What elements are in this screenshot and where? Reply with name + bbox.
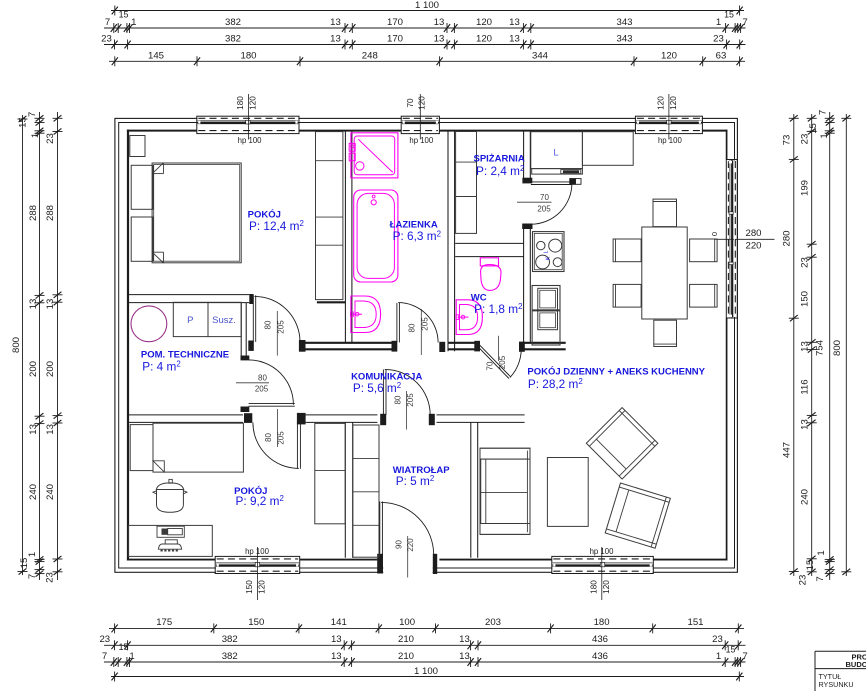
- svg-text:248: 248: [362, 50, 378, 61]
- svg-text:180: 180: [589, 580, 598, 594]
- svg-text:240: 240: [45, 484, 56, 500]
- svg-text:344: 344: [532, 50, 549, 61]
- svg-text:145: 145: [148, 50, 164, 61]
- svg-text:P: P: [187, 315, 193, 326]
- svg-text:120: 120: [249, 96, 258, 110]
- svg-text:120: 120: [476, 17, 492, 28]
- svg-text:23: 23: [800, 134, 811, 145]
- svg-text:13: 13: [331, 634, 342, 645]
- svg-text:RYSUNKU: RYSUNKU: [819, 680, 854, 689]
- svg-text:1: 1: [27, 552, 38, 557]
- svg-text:P: 12,4 m2: P: 12,4 m2: [249, 219, 304, 233]
- svg-text:382: 382: [225, 34, 241, 45]
- svg-text:15: 15: [119, 642, 129, 652]
- svg-text:205: 205: [277, 320, 286, 334]
- svg-text:L: L: [553, 148, 558, 159]
- svg-text:23: 23: [798, 575, 809, 586]
- svg-text:13: 13: [459, 651, 470, 662]
- svg-text:P: 9,2 m2: P: 9,2 m2: [236, 494, 284, 508]
- svg-text:7: 7: [815, 576, 826, 581]
- svg-text:1: 1: [716, 17, 721, 28]
- svg-text:175: 175: [156, 617, 172, 628]
- svg-text:hp 100: hp 100: [238, 136, 263, 145]
- svg-text:P: 5 m2: P: 5 m2: [396, 474, 434, 488]
- svg-text:7: 7: [102, 651, 107, 662]
- svg-text:1: 1: [30, 133, 41, 138]
- svg-text:210: 210: [398, 651, 414, 662]
- svg-text:1: 1: [819, 133, 830, 138]
- svg-text:13: 13: [459, 634, 470, 645]
- svg-text:200: 200: [45, 361, 56, 377]
- svg-text:hp 100: hp 100: [409, 136, 434, 145]
- svg-text:754: 754: [815, 339, 826, 356]
- svg-text:7: 7: [742, 17, 747, 28]
- svg-text:23: 23: [45, 572, 56, 583]
- svg-text:15: 15: [726, 645, 736, 655]
- svg-text:13: 13: [331, 651, 342, 662]
- svg-text:7: 7: [27, 112, 38, 117]
- svg-text:141: 141: [331, 617, 347, 628]
- svg-text:P: 6,3 m2: P: 6,3 m2: [393, 229, 441, 243]
- svg-text:220: 220: [406, 538, 415, 552]
- svg-text:7: 7: [27, 574, 38, 579]
- svg-text:23: 23: [45, 133, 56, 144]
- svg-text:P: 4 m2: P: 4 m2: [142, 360, 180, 374]
- svg-text:382: 382: [222, 634, 238, 645]
- svg-text:13: 13: [28, 424, 39, 435]
- svg-text:7: 7: [105, 17, 110, 28]
- svg-text:205: 205: [406, 393, 415, 407]
- svg-text:1 100: 1 100: [414, 666, 438, 677]
- svg-text:150: 150: [248, 617, 264, 628]
- svg-text:199: 199: [800, 180, 811, 196]
- svg-text:205: 205: [421, 317, 430, 331]
- svg-text:7: 7: [818, 110, 829, 115]
- svg-text:116: 116: [800, 379, 811, 394]
- svg-text:70: 70: [406, 98, 415, 108]
- svg-text:180: 180: [240, 50, 256, 61]
- svg-text:15: 15: [724, 10, 734, 20]
- svg-text:343: 343: [616, 34, 632, 45]
- svg-text:447: 447: [782, 442, 793, 458]
- svg-text:800: 800: [832, 340, 843, 356]
- svg-text:23: 23: [800, 257, 811, 268]
- svg-text:23: 23: [712, 634, 723, 645]
- svg-text:15: 15: [18, 117, 29, 128]
- svg-text:120: 120: [602, 580, 611, 594]
- svg-text:13: 13: [800, 419, 811, 430]
- svg-text:13: 13: [330, 34, 341, 45]
- svg-text:73: 73: [782, 135, 793, 146]
- svg-text:hp 100: hp 100: [590, 547, 615, 556]
- svg-text:23: 23: [99, 634, 110, 645]
- svg-text:1: 1: [816, 550, 827, 555]
- svg-text:13: 13: [45, 424, 56, 435]
- svg-text:170: 170: [387, 34, 403, 45]
- svg-text:80: 80: [408, 323, 417, 332]
- svg-text:120: 120: [257, 580, 266, 594]
- svg-text:280: 280: [745, 228, 761, 239]
- svg-text:150: 150: [800, 291, 811, 307]
- svg-text:hp 100: hp 100: [245, 547, 270, 556]
- svg-text:1: 1: [716, 651, 721, 662]
- svg-text:436: 436: [592, 634, 608, 645]
- svg-text:120: 120: [476, 34, 492, 45]
- svg-text:170: 170: [387, 17, 403, 28]
- svg-text:7: 7: [742, 651, 747, 662]
- svg-text:205: 205: [537, 204, 551, 213]
- svg-text:151: 151: [687, 617, 703, 628]
- svg-text:100: 100: [399, 617, 415, 628]
- svg-text:180: 180: [594, 617, 610, 628]
- svg-text:70: 70: [485, 361, 494, 370]
- svg-text:15: 15: [808, 123, 819, 134]
- svg-text:80: 80: [264, 320, 273, 329]
- svg-text:0: 0: [710, 232, 719, 236]
- svg-text:13: 13: [509, 17, 520, 28]
- svg-text:200: 200: [28, 361, 39, 377]
- svg-text:80: 80: [394, 395, 403, 404]
- svg-text:13: 13: [434, 17, 445, 28]
- svg-text:1: 1: [129, 651, 134, 662]
- svg-text:220: 220: [745, 241, 761, 252]
- svg-text:240: 240: [800, 489, 811, 505]
- svg-text:90: 90: [395, 540, 404, 549]
- svg-text:120: 120: [656, 96, 665, 110]
- svg-text:80: 80: [258, 373, 267, 382]
- svg-text:23: 23: [713, 34, 724, 45]
- svg-text:205: 205: [255, 385, 269, 394]
- svg-text:15: 15: [119, 10, 129, 20]
- svg-text:K: K: [546, 256, 552, 260]
- svg-text:13: 13: [800, 341, 811, 352]
- svg-text:288: 288: [28, 205, 39, 221]
- svg-text:1: 1: [131, 17, 136, 28]
- svg-text:13: 13: [330, 17, 341, 28]
- svg-text:BUDO: BUDO: [846, 660, 866, 669]
- svg-text:80: 80: [264, 433, 273, 442]
- svg-text:120: 120: [661, 50, 677, 61]
- svg-text:POKÓJ DZIENNY + ANEKS KUCHENNY: POKÓJ DZIENNY + ANEKS KUCHENNY: [527, 366, 705, 378]
- svg-text:120: 120: [418, 96, 427, 110]
- svg-text:203: 203: [485, 617, 501, 628]
- svg-text:P: 5,6 m2: P: 5,6 m2: [353, 381, 401, 395]
- svg-text:205: 205: [498, 355, 507, 369]
- svg-text:L: L: [544, 250, 550, 253]
- svg-text:210: 210: [398, 634, 414, 645]
- svg-text:23: 23: [101, 34, 112, 45]
- svg-text:382: 382: [225, 17, 241, 28]
- svg-text:150: 150: [245, 580, 254, 594]
- svg-text:205: 205: [277, 431, 286, 445]
- svg-text:382: 382: [222, 651, 238, 662]
- svg-text:P: 2,4 m2: P: 2,4 m2: [476, 164, 524, 178]
- svg-text:436: 436: [592, 651, 608, 662]
- svg-text:70: 70: [540, 193, 549, 202]
- svg-text:63: 63: [716, 50, 727, 61]
- svg-text:15: 15: [19, 558, 30, 569]
- svg-text:120: 120: [669, 96, 678, 110]
- svg-text:13: 13: [434, 34, 445, 45]
- svg-text:hp 100: hp 100: [658, 136, 683, 145]
- svg-text:800: 800: [11, 337, 22, 353]
- svg-text:13: 13: [45, 299, 56, 310]
- svg-text:Susz.: Susz.: [212, 315, 236, 326]
- svg-text:P: 1,8 m2: P: 1,8 m2: [474, 302, 522, 316]
- svg-text:1 100: 1 100: [415, 0, 439, 11]
- svg-text:280: 280: [782, 230, 793, 246]
- svg-text:180: 180: [236, 96, 245, 110]
- svg-text:240: 240: [28, 484, 39, 500]
- svg-text:13: 13: [509, 34, 520, 45]
- svg-text:343: 343: [616, 17, 632, 28]
- svg-text:P: 28,2 m2: P: 28,2 m2: [528, 377, 583, 391]
- svg-text:15: 15: [805, 560, 816, 571]
- svg-text:288: 288: [45, 205, 56, 221]
- svg-text:13: 13: [28, 299, 39, 310]
